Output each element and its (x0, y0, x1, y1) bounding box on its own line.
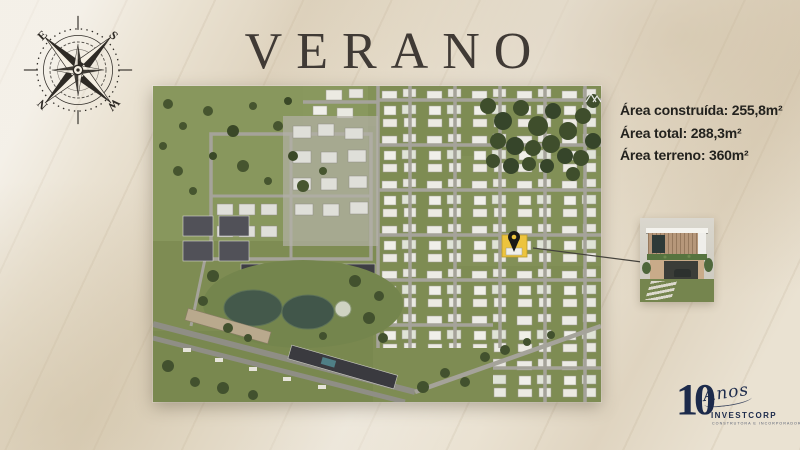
property-details: Área construída: 255,8m² Área total: 288… (620, 99, 782, 167)
master-plan-map (153, 86, 601, 402)
logo-tagline: CONSTRUTORA E INCORPORADORA (712, 422, 800, 426)
house-window (652, 235, 665, 253)
developer-logo: 10 Anos INVESTCORP CONSTRUTORA E INCORPO… (676, 378, 786, 438)
presentation-slide: E S W N VERANO (0, 0, 800, 450)
area-built-line: Área construída: 255,8m² (620, 99, 782, 122)
area-land-line: Área terreno: 360m² (620, 144, 782, 167)
logo-company-name: INVESTCORP (711, 411, 777, 420)
bush-left (642, 262, 651, 274)
area-total-line: Área total: 288,3m² (620, 122, 782, 145)
aerial-render (153, 86, 601, 402)
page-title: VERANO (0, 22, 790, 81)
car (674, 269, 691, 277)
house-photo (640, 218, 714, 302)
bush-right (704, 258, 713, 272)
park-and-lakes (203, 260, 403, 348)
house-side-wall (698, 233, 706, 255)
